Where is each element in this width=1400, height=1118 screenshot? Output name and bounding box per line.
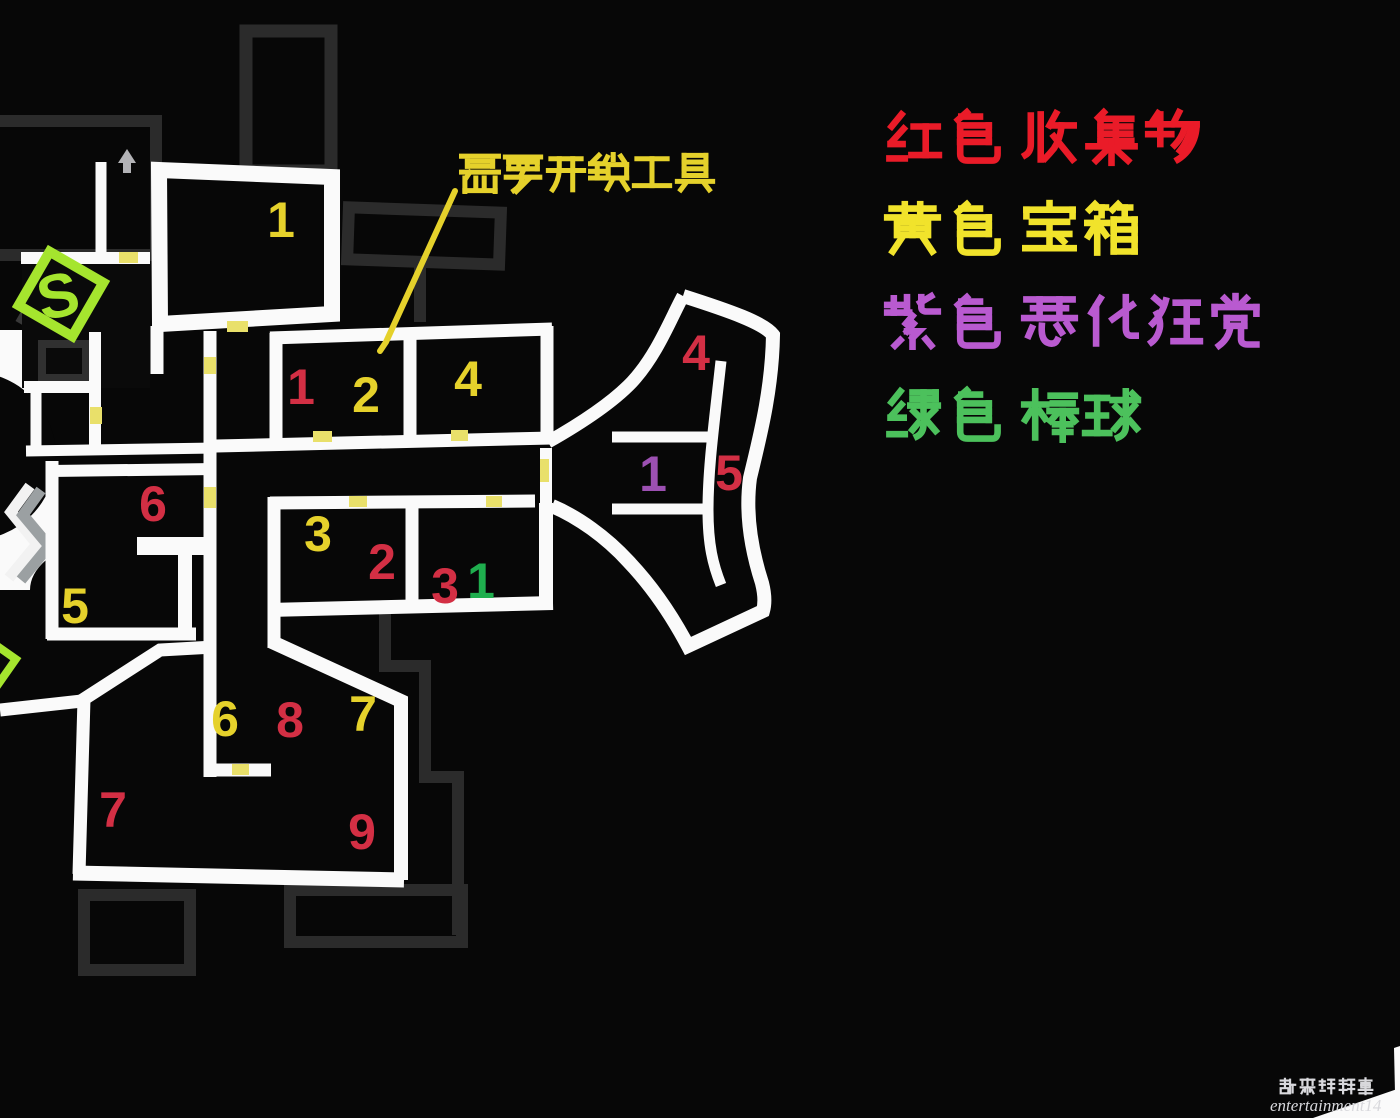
svg-text:8: 8 — [276, 692, 304, 748]
svg-text:5: 5 — [715, 445, 743, 501]
svg-text:4: 4 — [682, 325, 710, 381]
svg-text:3: 3 — [304, 506, 332, 562]
svg-text:3: 3 — [431, 558, 459, 614]
svg-text:7: 7 — [349, 686, 377, 742]
svg-text:9: 9 — [348, 804, 376, 860]
svg-text:2: 2 — [368, 534, 396, 590]
svg-text:6: 6 — [211, 691, 239, 747]
svg-text:1: 1 — [467, 553, 495, 609]
svg-text:7: 7 — [99, 782, 127, 838]
svg-text:5: 5 — [61, 578, 89, 634]
svg-text:4: 4 — [454, 351, 482, 407]
svg-text:6: 6 — [139, 476, 167, 532]
svg-text:entertainment14: entertainment14 — [1270, 1096, 1382, 1115]
svg-text:1: 1 — [639, 446, 667, 502]
svg-text:2: 2 — [352, 367, 380, 423]
svg-text:1: 1 — [287, 359, 315, 415]
svg-text:1: 1 — [267, 192, 295, 248]
